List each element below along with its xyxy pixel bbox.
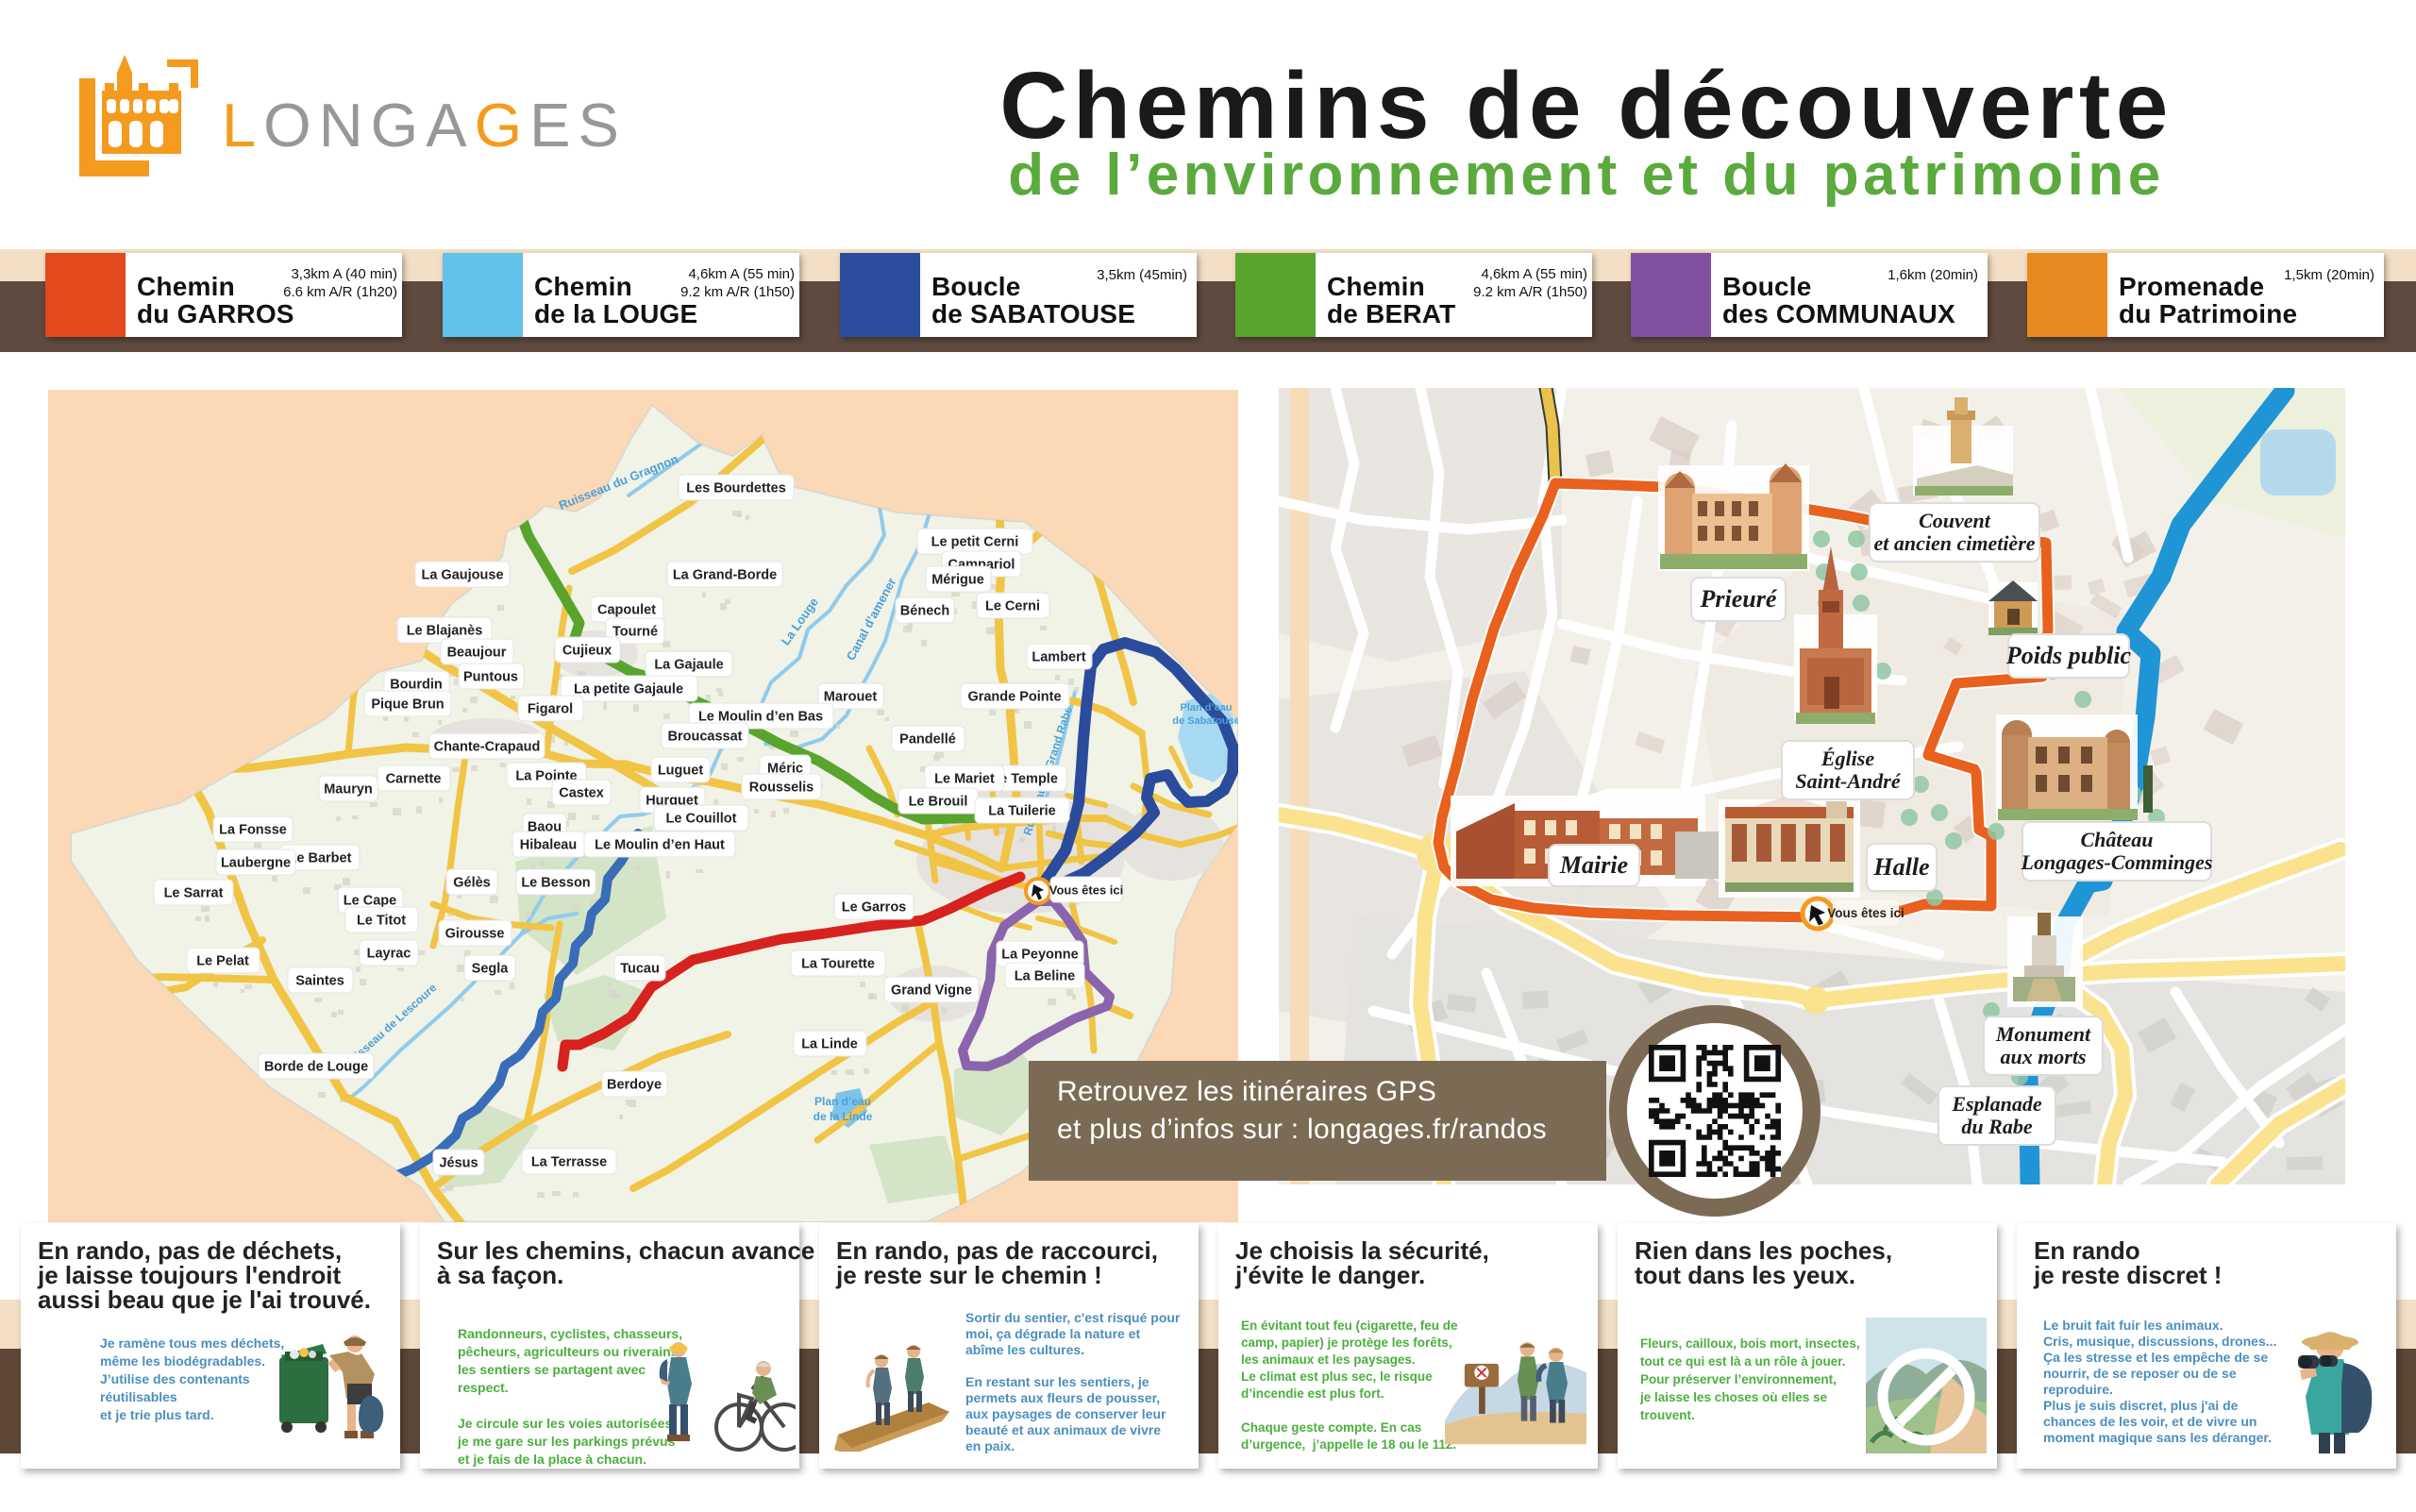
svg-text:Halle: Halle <box>1872 853 1929 881</box>
svg-text:de la Linde: de la Linde <box>814 1110 873 1123</box>
svg-text:Église: Église <box>1820 747 1874 770</box>
svg-text:Château: Château <box>2080 828 2153 851</box>
svg-text:LONGAGES: LONGAGES <box>222 91 627 160</box>
svg-text:Marouet: Marouet <box>824 690 878 705</box>
svg-text:Le Mariet: Le Mariet <box>934 772 995 787</box>
svg-text:Gélès: Gélès <box>453 876 491 891</box>
svg-text:Le Pelat: Le Pelat <box>196 954 249 969</box>
svg-text:La Fonsse: La Fonsse <box>219 823 287 838</box>
svg-text:Pique Brun: Pique Brun <box>371 697 444 713</box>
svg-text:Beaujour: Beaujour <box>447 646 507 661</box>
svg-text:Saint-André: Saint-André <box>1795 769 1901 793</box>
svg-text:Grand Vigne: Grand Vigne <box>891 983 972 999</box>
svg-text:Jésus: Jésus <box>439 1156 478 1171</box>
svg-text:La Peyonne: La Peyonne <box>1001 948 1078 963</box>
svg-text:le Temple: le Temple <box>996 772 1058 787</box>
svg-text:et ancien cimetière: et ancien cimetière <box>1873 531 2035 555</box>
svg-text:La Linde: La Linde <box>801 1037 858 1052</box>
svg-text:Le Brouil: Le Brouil <box>909 795 968 810</box>
svg-text:Tourné: Tourné <box>612 625 658 640</box>
svg-text:aux morts: aux morts <box>2000 1045 2086 1068</box>
svg-text:Layrac: Layrac <box>367 947 411 962</box>
svg-text:La Terrasse: La Terrasse <box>531 1155 607 1170</box>
svg-text:Poids public: Poids public <box>2005 642 2132 669</box>
svg-text:Mérigue: Mérigue <box>931 573 984 588</box>
svg-text:Longages-Comminges: Longages-Comminges <box>2021 850 2213 874</box>
svg-text:La Grand-Borde: La Grand-Borde <box>673 568 777 583</box>
svg-text:Mairie: Mairie <box>1559 851 1628 879</box>
svg-text:Le Sarrat: Le Sarrat <box>164 886 224 901</box>
svg-text:La Tourette: La Tourette <box>801 957 875 972</box>
svg-text:Esplanade: Esplanade <box>1951 1092 2042 1116</box>
svg-text:Luguet: Luguet <box>658 764 703 779</box>
svg-text:La Tuilerie: La Tuilerie <box>988 804 1055 819</box>
svg-text:Tucau: Tucau <box>620 962 660 977</box>
svg-text:Le Cape: Le Cape <box>344 894 396 909</box>
svg-text:Le Moulin d’en Bas: Le Moulin d’en Bas <box>698 710 823 725</box>
svg-text:Borde de Louge: Borde de Louge <box>264 1060 368 1075</box>
svg-text:Girousse: Girousse <box>445 927 505 942</box>
svg-text:Grande Pointe: Grande Pointe <box>967 690 1061 705</box>
svg-text:Le Moulin d’en Haut: Le Moulin d’en Haut <box>595 838 725 853</box>
svg-text:Hibaleau: Hibaleau <box>520 838 577 853</box>
svg-text:Prieuré: Prieuré <box>1700 585 1778 613</box>
svg-text:Laubergne: Laubergne <box>221 856 291 871</box>
svg-text:Le petit Cerni: Le petit Cerni <box>931 535 1019 550</box>
svg-text:Monument: Monument <box>1995 1022 2091 1046</box>
svg-text:Broucassat: Broucassat <box>668 730 743 745</box>
svg-text:de Sabatouse: de Sabatouse <box>1172 715 1238 727</box>
svg-text:Le Couillot: Le Couillot <box>666 812 737 827</box>
svg-text:Puntous: Puntous <box>463 670 518 685</box>
svg-text:du Rabe: du Rabe <box>1961 1115 2032 1138</box>
svg-text:Plan d’eau: Plan d’eau <box>814 1095 871 1108</box>
svg-text:Le Garros: Le Garros <box>842 900 907 916</box>
svg-text:Vous êtes ici: Vous êtes ici <box>1049 883 1124 898</box>
svg-text:Le Blajanès: Le Blajanès <box>407 624 483 639</box>
svg-text:Chante-Crapaud: Chante-Crapaud <box>434 740 541 755</box>
svg-text:Saintes: Saintes <box>295 974 344 989</box>
svg-text:Lambert: Lambert <box>1032 650 1085 665</box>
svg-text:La petite Gajaule: La petite Gajaule <box>574 682 683 697</box>
svg-text:Le Cerni: Le Cerni <box>985 599 1040 614</box>
svg-text:Berdoye: Berdoye <box>607 1078 662 1093</box>
svg-text:Segla: Segla <box>472 962 510 977</box>
svg-text:La Gaujouse: La Gaujouse <box>421 568 503 583</box>
svg-text:La Gajaule: La Gajaule <box>654 658 723 673</box>
svg-text:Les Bourdettes: Les Bourdettes <box>686 481 786 496</box>
svg-text:Bénech: Bénech <box>900 604 949 619</box>
svg-text:Vous êtes ici: Vous êtes ici <box>1827 906 1904 920</box>
svg-text:Capoulet: Capoulet <box>597 603 656 618</box>
svg-text:Cujieux: Cujieux <box>562 644 612 659</box>
svg-text:Mauryn: Mauryn <box>324 782 373 798</box>
svg-text:Pandellé: Pandellé <box>899 732 956 748</box>
svg-text:Le Barbet: Le Barbet <box>289 851 352 866</box>
svg-text:La Beline: La Beline <box>1015 969 1075 984</box>
svg-text:Castex: Castex <box>559 786 604 801</box>
svg-text:Couvent: Couvent <box>1919 509 1991 532</box>
svg-text:Le Besson: Le Besson <box>521 876 590 891</box>
svg-text:Figarol: Figarol <box>528 702 573 717</box>
svg-text:Carnette: Carnette <box>386 772 442 787</box>
svg-text:Rousselis: Rousselis <box>749 781 814 796</box>
svg-text:Plan d’eau: Plan d’eau <box>1180 702 1232 714</box>
svg-text:Le Titot: Le Titot <box>357 914 406 929</box>
svg-text:Bourdin: Bourdin <box>390 678 443 693</box>
